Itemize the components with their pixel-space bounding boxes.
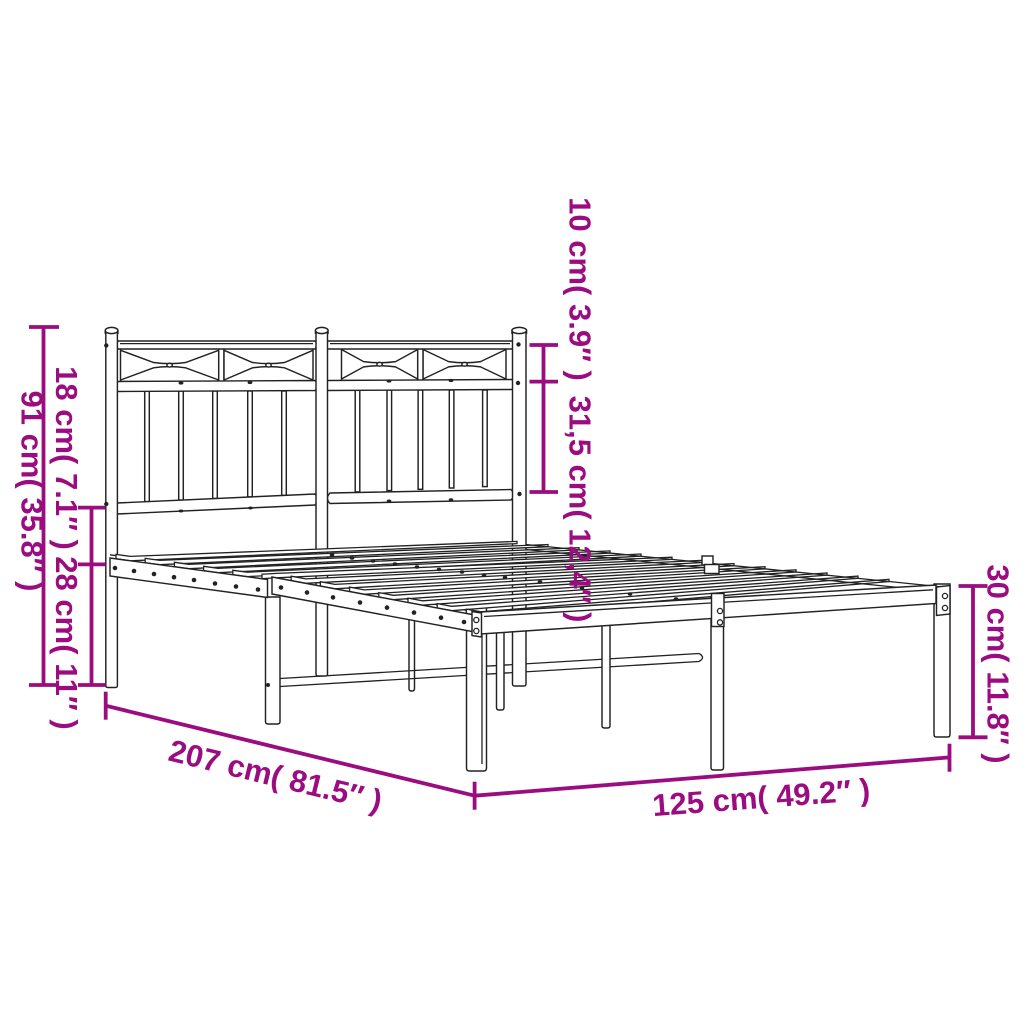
svg-text:31,5 cm( 12,4″ ): 31,5 cm( 12,4″ ) (563, 396, 598, 623)
svg-text:10 cm( 3.9″ ): 10 cm( 3.9″ ) (563, 197, 598, 381)
svg-text:28 cm( 11″ ): 28 cm( 11″ ) (49, 556, 84, 729)
svg-text:91 cm( 35.8″ ): 91 cm( 35.8″ ) (15, 391, 50, 592)
svg-text:30 cm( 11.8″ ): 30 cm( 11.8″ ) (981, 564, 1016, 763)
svg-text:18 cm( 7.1″ ): 18 cm( 7.1″ ) (49, 366, 84, 550)
